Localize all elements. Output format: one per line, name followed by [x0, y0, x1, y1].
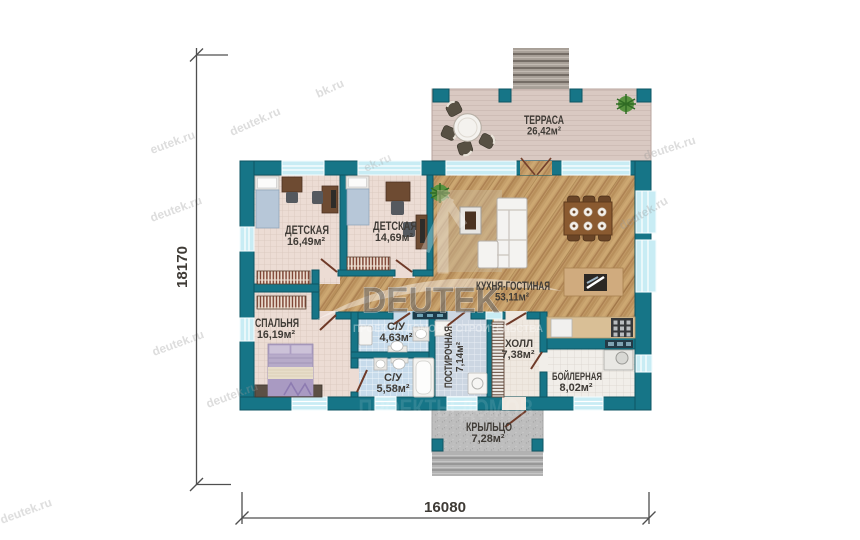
svg-text:5,58м²: 5,58м² — [377, 383, 410, 395]
svg-text:16,49м²: 16,49м² — [287, 236, 325, 248]
svg-text:7,14м²: 7,14м² — [454, 342, 466, 372]
svg-text:4,63м²: 4,63м² — [380, 332, 413, 344]
svg-text:7,28м²: 7,28м² — [472, 433, 505, 445]
svg-text:14,69м²: 14,69м² — [375, 232, 413, 244]
svg-text:16,19м²: 16,19м² — [257, 329, 295, 341]
svg-text:18170: 18170 — [174, 246, 191, 288]
svg-text:16080: 16080 — [424, 499, 466, 516]
svg-text:ПРОЕКТЫ ДОМОВ: ПРОЕКТЫ ДОМОВ — [359, 395, 534, 423]
svg-text:7,38м²: 7,38м² — [502, 349, 535, 361]
svg-text:53,11м²: 53,11м² — [495, 292, 529, 304]
svg-text:26,42м²: 26,42м² — [527, 126, 561, 138]
svg-text:8,02м²: 8,02м² — [560, 382, 593, 394]
